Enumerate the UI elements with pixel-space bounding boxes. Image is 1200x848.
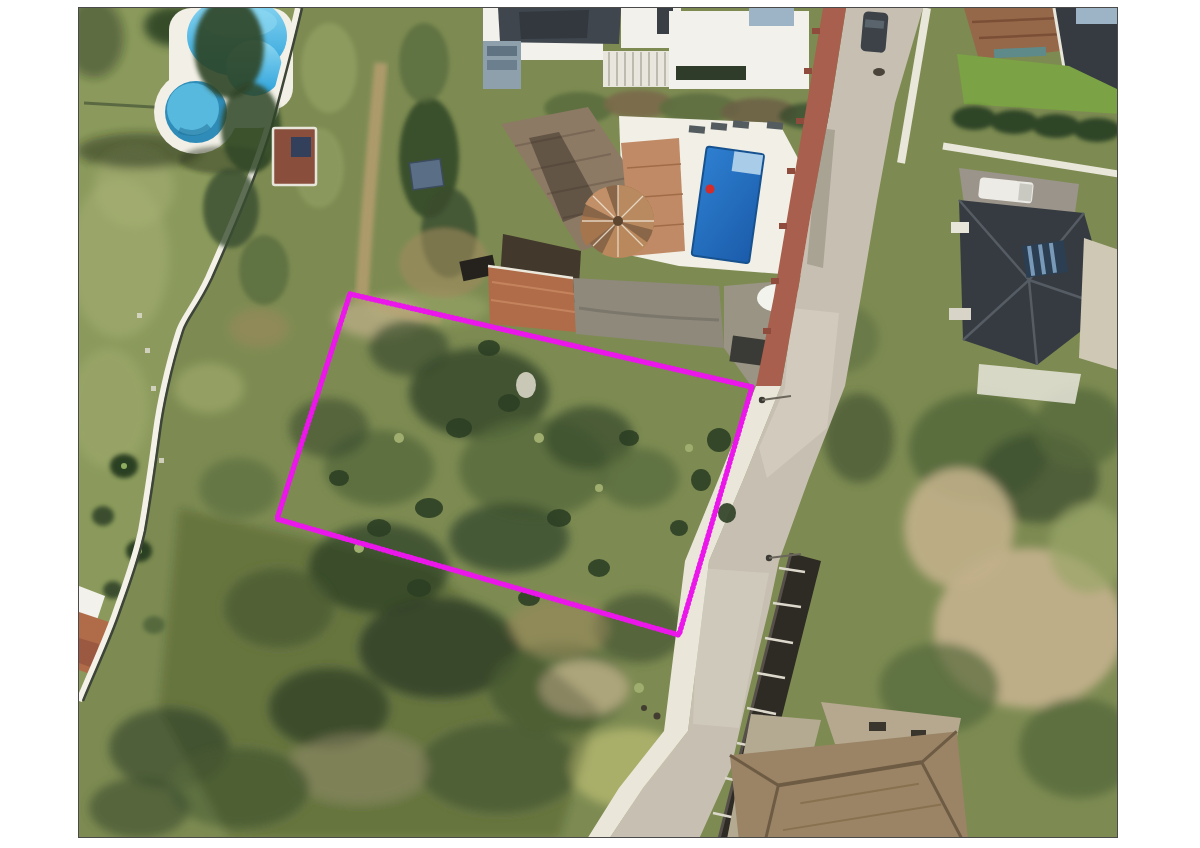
red-towel xyxy=(706,185,715,194)
garden-shed xyxy=(273,128,316,185)
solar-panel xyxy=(409,159,443,190)
gravel-strip xyxy=(1079,238,1118,370)
satellite-photo xyxy=(79,8,1118,838)
bottom-house xyxy=(727,702,969,838)
car-on-road xyxy=(860,11,888,53)
photo-frame xyxy=(78,7,1118,838)
rock-patch xyxy=(516,372,536,398)
pergola-roof xyxy=(603,51,669,87)
